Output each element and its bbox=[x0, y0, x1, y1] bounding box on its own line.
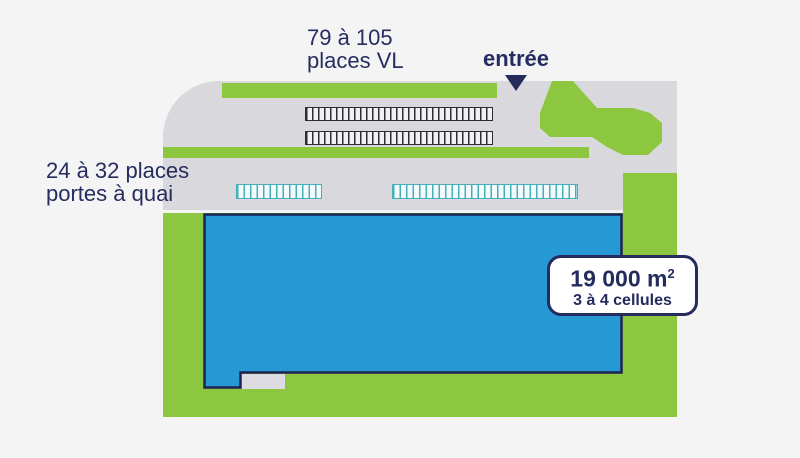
dock-doors-row-1 bbox=[236, 184, 322, 199]
vl-places-line2: places VL bbox=[307, 49, 404, 72]
dock-doors-row-2 bbox=[392, 184, 578, 199]
area-badge: 19 000 m2 3 à 4 cellules bbox=[547, 255, 698, 316]
landscape-middle-strip bbox=[163, 147, 589, 158]
dock-places-line1: 24 à 32 places bbox=[46, 159, 189, 182]
landscape-building-platform bbox=[163, 213, 623, 417]
area-badge-surface: 19 000 m2 bbox=[570, 261, 674, 292]
building-ramp-notch bbox=[241, 374, 285, 389]
vl-parking-row-1 bbox=[305, 107, 493, 121]
vl-parking-row-2 bbox=[305, 131, 493, 145]
area-sup: 2 bbox=[667, 266, 674, 281]
dock-places-label: 24 à 32 places portes à quai bbox=[46, 159, 189, 205]
site-plan: 79 à 105 places VL entrée 24 à 32 places… bbox=[0, 0, 800, 458]
area-badge-cells: 3 à 4 cellules bbox=[573, 291, 672, 310]
entrance-label: entrée bbox=[470, 47, 562, 70]
dock-places-line2: portes à quai bbox=[46, 182, 189, 205]
vl-places-label: 79 à 105 places VL bbox=[307, 26, 404, 72]
vl-places-line1: 79 à 105 bbox=[307, 26, 404, 49]
landscape-top-strip bbox=[222, 83, 497, 98]
area-value: 19 000 m bbox=[570, 265, 667, 291]
